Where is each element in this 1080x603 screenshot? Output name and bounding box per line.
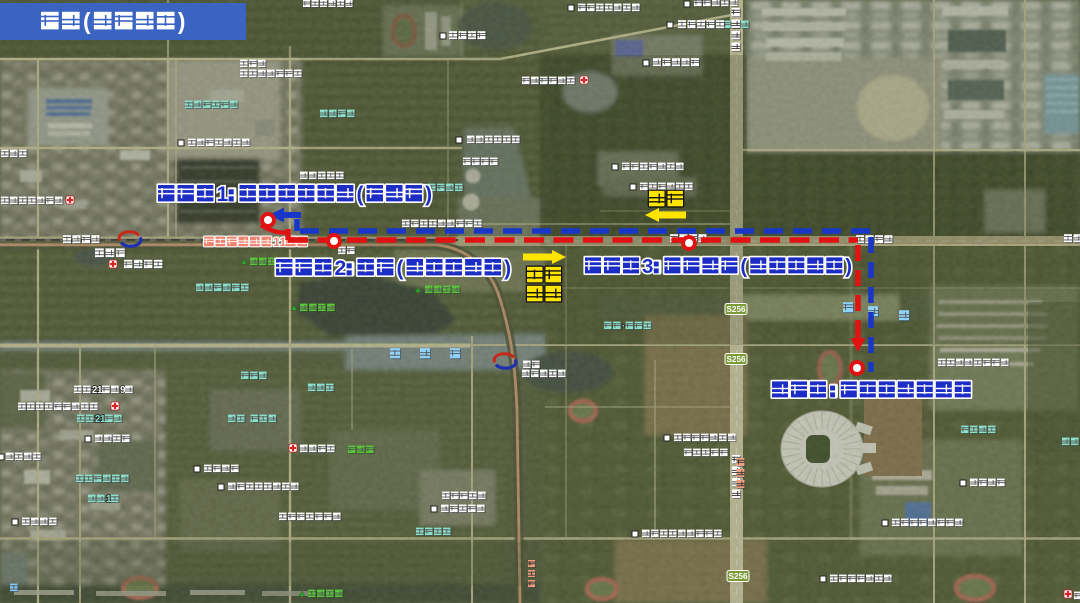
svg-text:S256: S256 [726, 355, 746, 364]
svg-text:·: · [622, 321, 625, 332]
svg-text:3: 3 [642, 255, 653, 278]
svg-text:): ) [504, 257, 511, 280]
svg-text:(: ( [397, 257, 404, 280]
svg-text:): ) [425, 183, 432, 206]
svg-text:): ) [845, 255, 852, 278]
svg-text:): ) [178, 8, 186, 34]
svg-text:(: ( [83, 8, 91, 34]
svg-text:(: ( [740, 255, 747, 278]
svg-text:S256: S256 [726, 305, 746, 314]
svg-text:S256: S256 [728, 572, 748, 581]
svg-text:2: 2 [335, 257, 347, 280]
svg-text:(: ( [357, 183, 364, 206]
svg-text:1: 1 [217, 183, 229, 206]
